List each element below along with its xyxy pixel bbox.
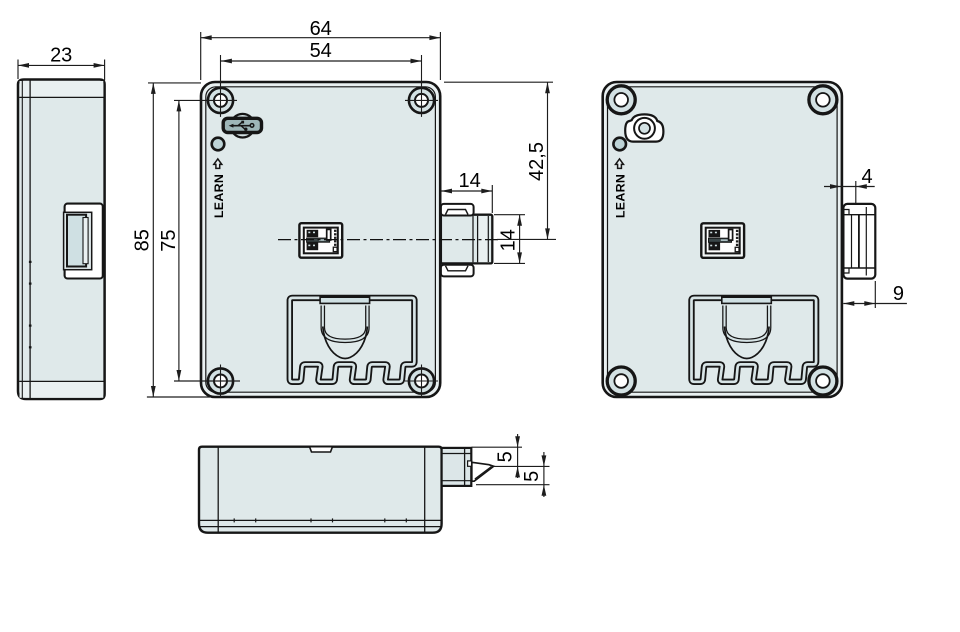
svg-text:54: 54	[310, 40, 332, 62]
svg-text:75: 75	[158, 229, 180, 251]
svg-text:LEARN: LEARN	[212, 174, 226, 218]
svg-text:14: 14	[458, 170, 480, 192]
svg-text:9: 9	[893, 283, 904, 305]
svg-text:14: 14	[497, 229, 519, 251]
svg-text:5: 5	[521, 471, 543, 482]
svg-text:4: 4	[861, 166, 872, 188]
svg-text:5: 5	[495, 451, 517, 462]
svg-text:42,5: 42,5	[526, 142, 548, 181]
svg-text:85: 85	[132, 229, 154, 251]
svg-text:LEARN: LEARN	[614, 174, 628, 218]
svg-text:23: 23	[50, 45, 72, 67]
svg-text:64: 64	[310, 18, 332, 40]
